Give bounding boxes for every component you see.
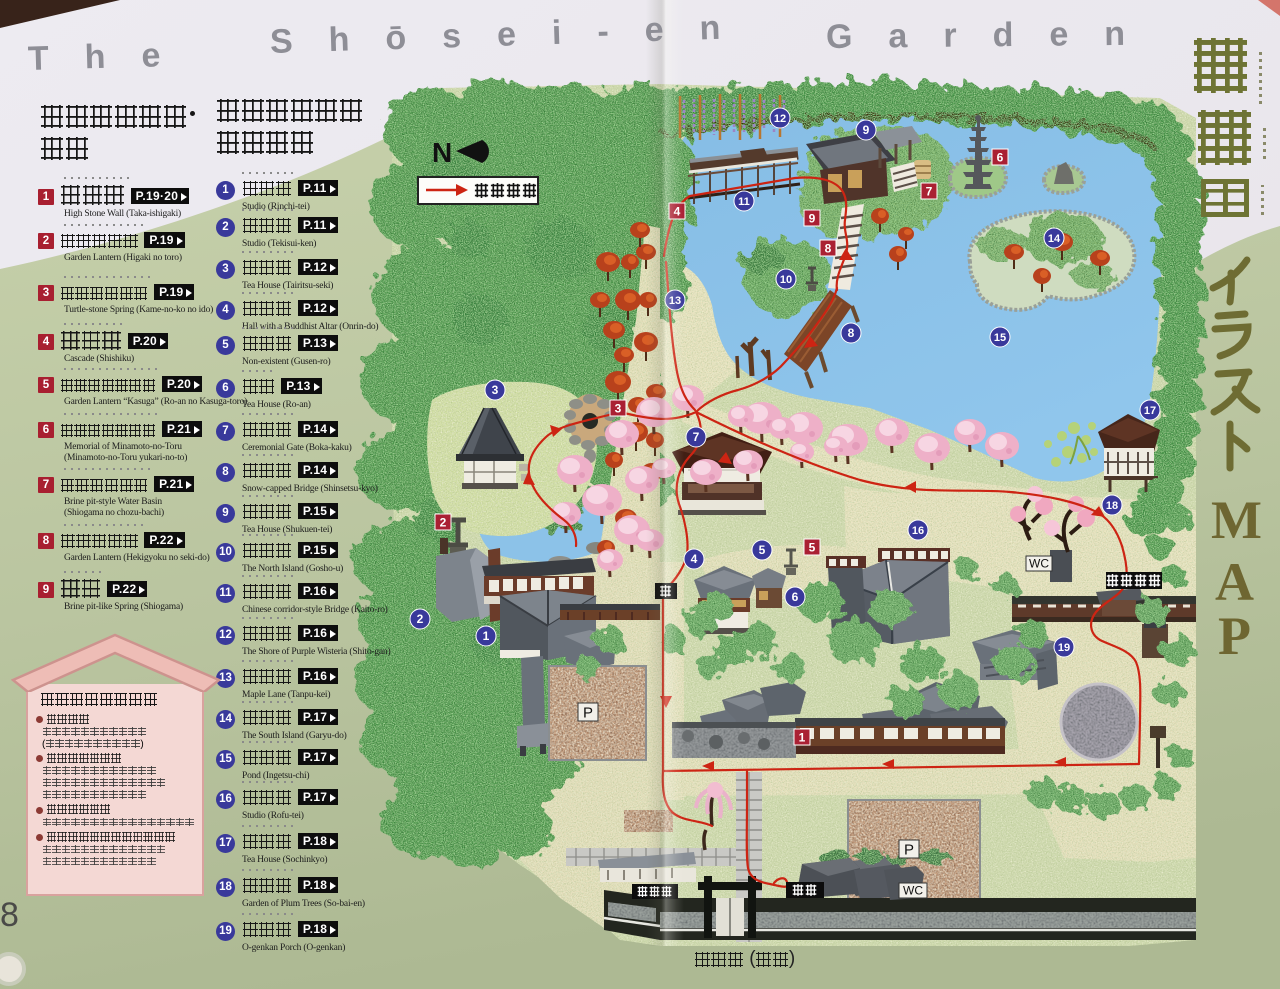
svg-text:6: 6 (997, 151, 1004, 165)
svg-text:5: 5 (759, 543, 766, 557)
svg-text:M: M (1211, 490, 1262, 550)
svg-text:7: 7 (693, 430, 700, 444)
svg-text:4: 4 (691, 552, 698, 566)
svg-text:19: 19 (1058, 642, 1070, 654)
svg-text:5: 5 (809, 541, 816, 555)
svg-text:17: 17 (1144, 405, 1156, 417)
svg-text:3: 3 (492, 383, 499, 397)
svg-text:9: 9 (809, 212, 816, 226)
svg-text:P: P (583, 705, 593, 722)
svg-text:1: 1 (799, 731, 806, 745)
svg-text:2: 2 (440, 516, 447, 530)
svg-text:P: P (904, 842, 914, 859)
svg-text:8: 8 (848, 326, 855, 340)
svg-text:10: 10 (780, 274, 792, 286)
svg-text:A: A (1215, 552, 1254, 612)
svg-text:N: N (432, 137, 452, 168)
svg-text:14: 14 (1048, 233, 1061, 245)
svg-text:12: 12 (774, 113, 786, 125)
svg-text:16: 16 (912, 525, 924, 537)
svg-text:18: 18 (1106, 500, 1118, 512)
svg-text:9: 9 (863, 123, 870, 137)
svg-text:1: 1 (483, 629, 490, 643)
svg-text:11: 11 (738, 196, 750, 208)
svg-text:WC: WC (1029, 557, 1049, 571)
svg-text:8: 8 (825, 242, 832, 256)
svg-text:3: 3 (615, 402, 622, 416)
svg-text:7: 7 (926, 185, 933, 199)
svg-text:2: 2 (417, 612, 424, 626)
svg-text:6: 6 (792, 590, 799, 604)
svg-text:WC: WC (903, 884, 923, 898)
svg-text:15: 15 (994, 332, 1006, 344)
svg-text:P: P (1218, 606, 1251, 666)
